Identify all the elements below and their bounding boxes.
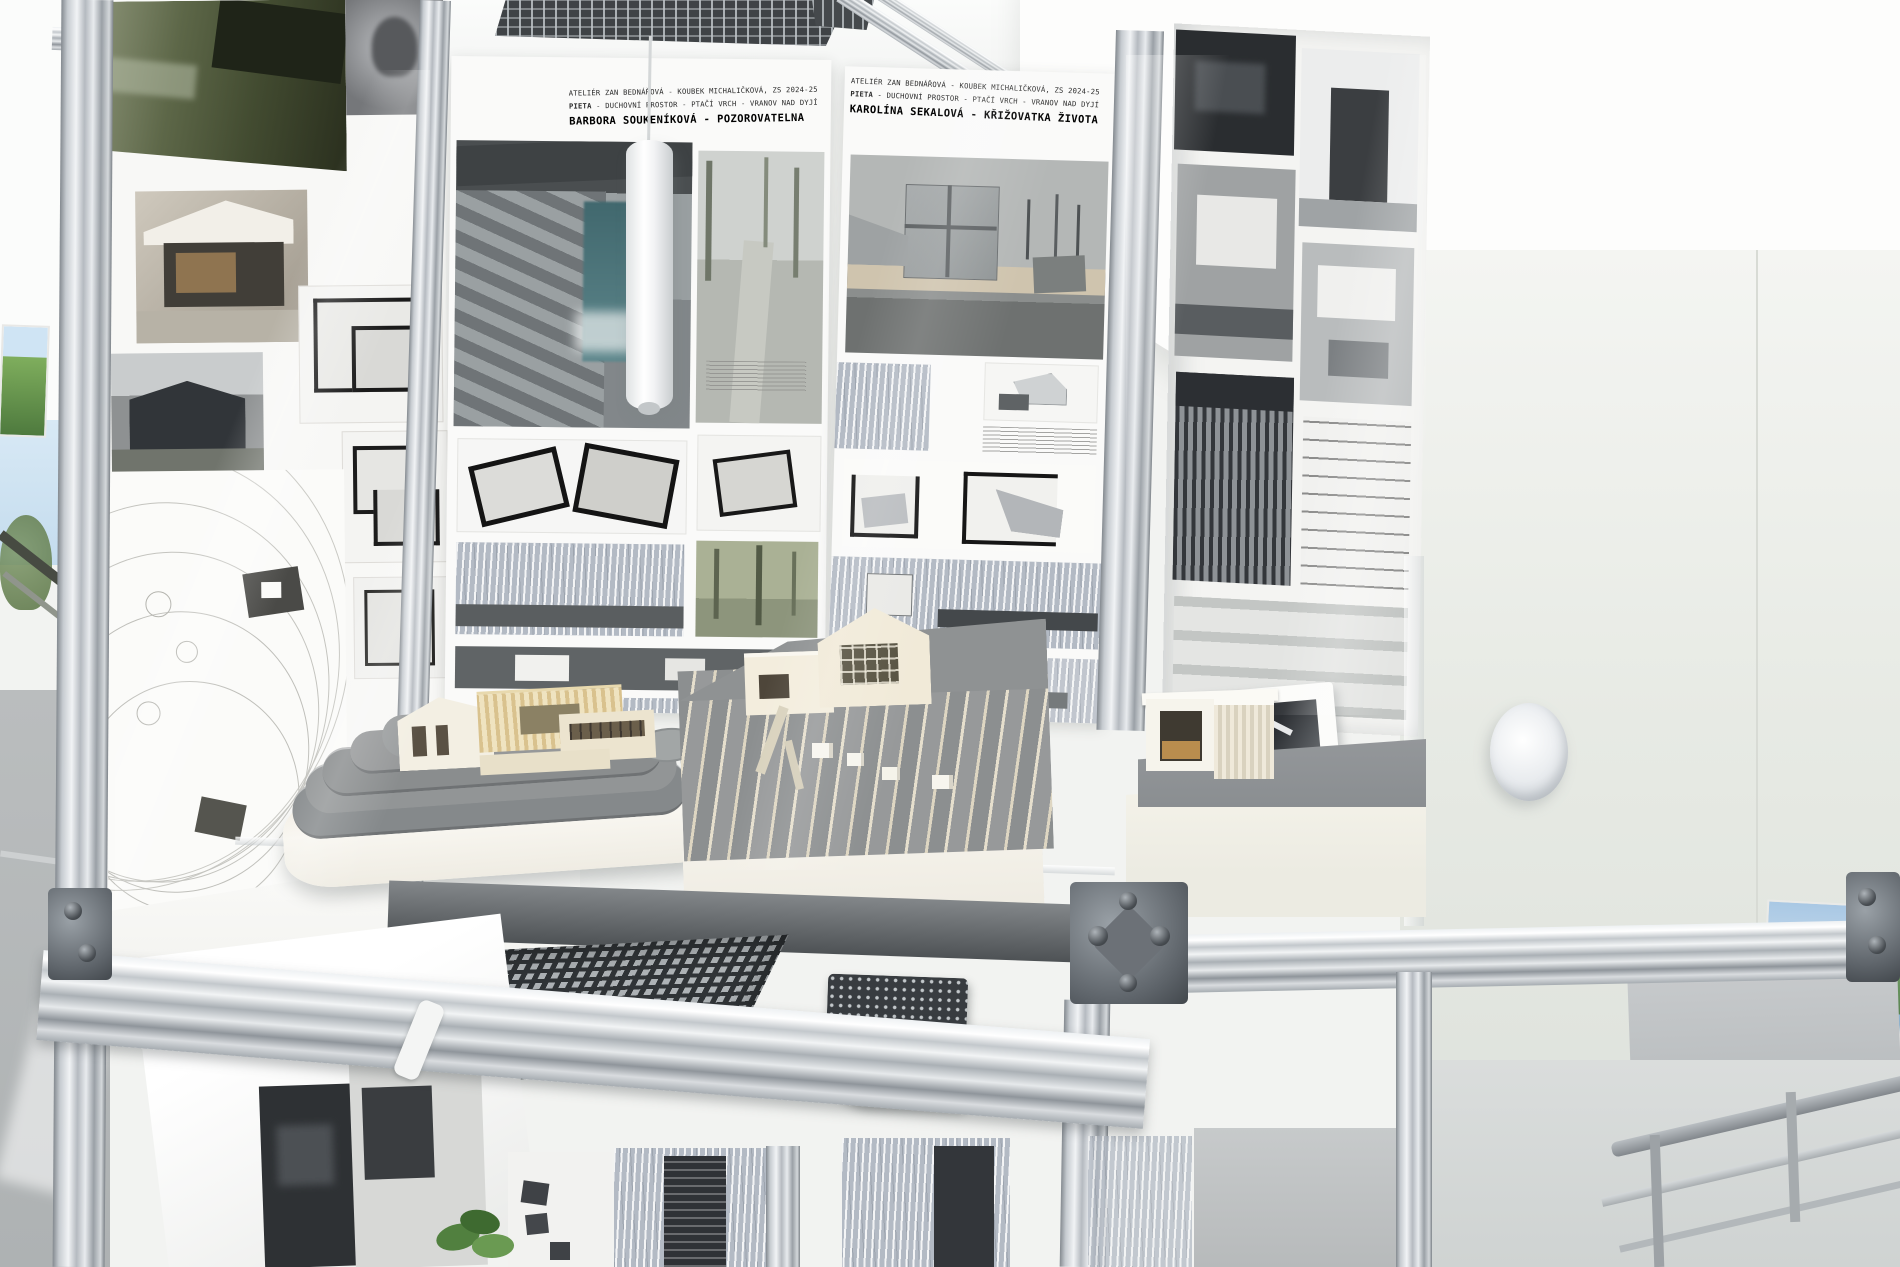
exhibition-photo: ATELIÉR ZAN BEDNÁŘOVÁ - KOUBEK MICHALIČK… — [0, 0, 1900, 1267]
lower-photo-dark — [259, 1083, 357, 1267]
painting-path-trees — [696, 151, 825, 424]
axonometric-diagram — [983, 362, 1099, 423]
model-house-gabled — [816, 606, 931, 708]
model-cube — [932, 775, 953, 789]
author-title-line: BARBORA SOUKENÍKOVÁ - POZOROVATELNA — [569, 112, 827, 128]
render-house-cutaway — [135, 190, 309, 344]
lower-poster-right — [1088, 1136, 1192, 1267]
theme-line: PIETA - DUCHOVNÍ PROSTOR - PTAČÍ VRCH - … — [569, 96, 827, 113]
bw-image-vertical-bars — [1172, 372, 1294, 586]
pendant-lamp-tip — [638, 402, 660, 415]
render-dark-house — [111, 352, 264, 486]
right-panel-poster — [1162, 23, 1430, 736]
frame-post-lower-mid — [766, 1146, 800, 1267]
wall-corner-line — [1756, 250, 1758, 990]
frame-connector-right — [1846, 872, 1900, 982]
painting-cube-chapel — [845, 154, 1108, 359]
axonometric-drawing-small — [696, 435, 821, 532]
wall-lamp — [1490, 703, 1568, 801]
lower-poster-tower — [614, 1148, 766, 1267]
frame-connector-center — [1070, 882, 1188, 1004]
landscape-photo-left — [0, 324, 50, 438]
lower-poster-tower-2 — [842, 1138, 1010, 1267]
poster-paragraph — [982, 426, 1097, 455]
collage-trees-section — [455, 542, 684, 636]
poster-header: ATELIÉR ZAN BEDNÁŘOVÁ - KOUBEK MICHALIČK… — [849, 74, 1117, 127]
model-cube — [882, 767, 900, 780]
photo-green-building — [95, 0, 347, 174]
poster-header: ATELIÉR ZAN BEDNÁŘOVÁ - KOUBEK MICHALIČK… — [569, 83, 828, 128]
frame-post-right-front — [1396, 972, 1432, 1267]
model-pozorovatelna — [265, 630, 715, 890]
bw-plan-gray — [1300, 242, 1415, 406]
axonometric-drawing — [456, 438, 687, 534]
bw-drawings — [1300, 416, 1411, 590]
frame-post-left — [53, 0, 114, 1267]
model-house-volume — [1146, 699, 1216, 771]
bw-photo-dark — [1174, 29, 1296, 155]
lower-poster-cubes — [508, 1152, 612, 1267]
model-cube — [847, 753, 864, 766]
bw-render-building — [1174, 164, 1295, 362]
bw-render-tower — [1299, 48, 1420, 232]
collage-birch — [834, 362, 930, 451]
pendant-lamp — [626, 140, 673, 410]
model-cube — [812, 743, 833, 758]
floor-plans-row — [842, 458, 1096, 553]
model-krizovatka — [672, 585, 1057, 925]
lower-panel-gray — [1194, 1128, 1406, 1267]
frame-connector-left — [48, 888, 112, 980]
model-house-slatted — [1214, 699, 1274, 779]
plant-leaves — [436, 1206, 516, 1267]
